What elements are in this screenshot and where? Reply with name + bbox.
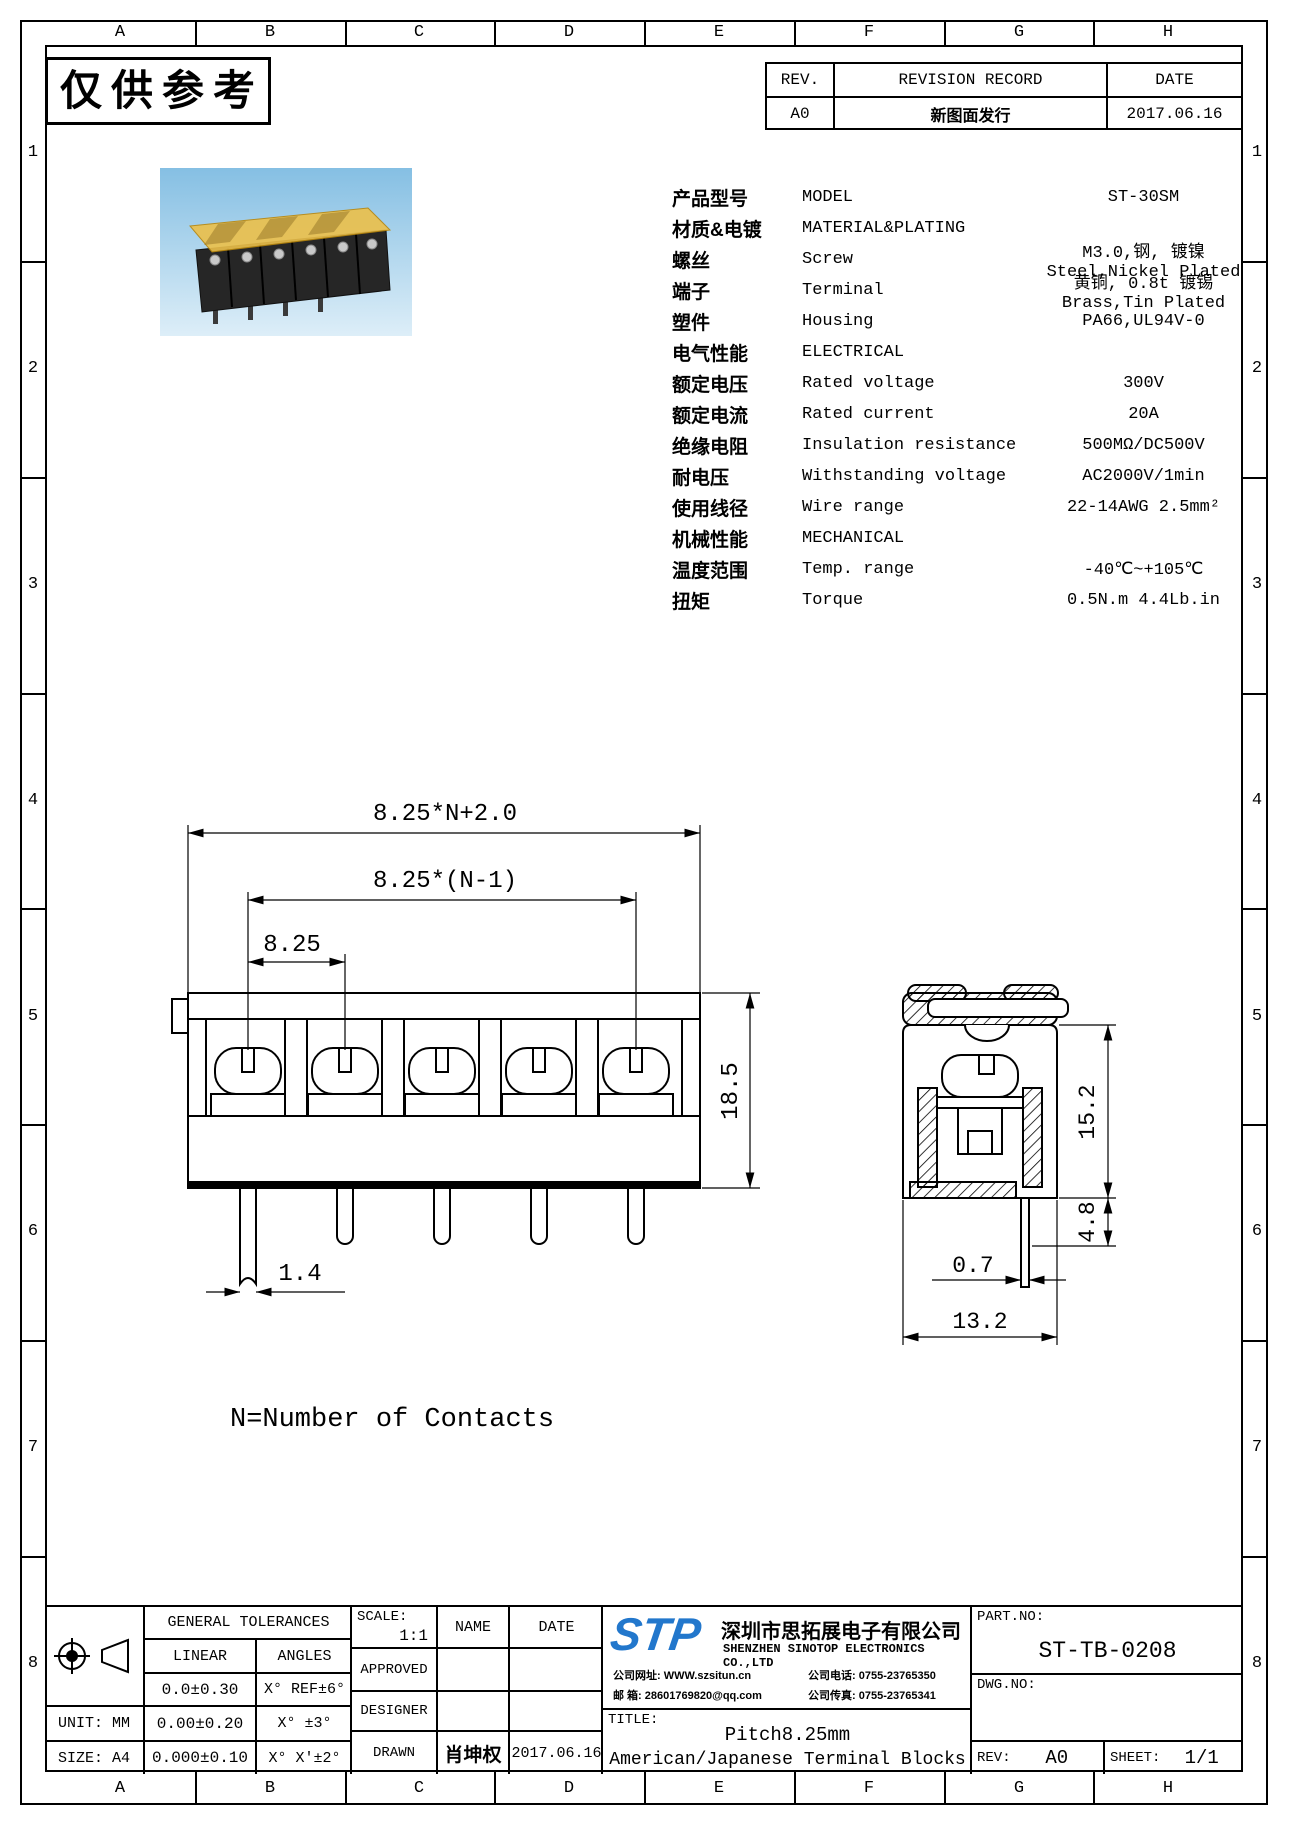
- designer-name-cell: [438, 1692, 510, 1732]
- revision-table: REV. REVISION RECORD DATE A0 新图面发行 2017.…: [765, 62, 1243, 130]
- grid-tick: [1243, 908, 1268, 910]
- scale-label: SCALE:: [357, 1609, 407, 1625]
- rev-label: REV:: [977, 1750, 1011, 1766]
- part-no-cell: PART.NO: ST-TB-0208: [972, 1607, 1243, 1675]
- grid-tick: [1243, 693, 1268, 695]
- drawn-date: 2017.06.16: [510, 1732, 603, 1774]
- tolerance-linear-3: 0.000±0.10: [145, 1742, 257, 1774]
- grid-tick: [944, 1772, 946, 1805]
- company-website: 公司网址: WWW.szsitun.cn: [613, 1667, 751, 1683]
- grid-tick: [1243, 261, 1268, 263]
- third-angle-projection-icon: [46, 1626, 142, 1686]
- grid-row-label: 5: [1245, 1007, 1269, 1026]
- side-view-drawing: 15.2 4.8 0.7 13.2: [880, 935, 1170, 1350]
- rev-value: A0: [767, 98, 835, 130]
- grid-row-label: 7: [21, 1438, 45, 1457]
- spec-label-cn: 材质&电镀: [672, 215, 802, 242]
- designer-date-cell: [510, 1692, 603, 1732]
- grid-row-label: 2: [1245, 359, 1269, 378]
- part-no-value: ST-TB-0208: [972, 1631, 1243, 1671]
- revision-record-value: 新图面发行: [835, 98, 1108, 130]
- dim-pitch: 8.25: [263, 932, 321, 959]
- tolerance-angle-1: X° REF±6°: [257, 1674, 352, 1707]
- spec-value: AC2000V/1min: [1044, 467, 1243, 486]
- spec-label-cn: 扭矩: [672, 587, 802, 614]
- approved-label: APPROVED: [352, 1649, 438, 1692]
- company-fax: 公司传真: 0755-23765341: [808, 1687, 936, 1703]
- fax-label: 公司传真:: [808, 1690, 856, 1702]
- name-header: NAME: [438, 1607, 510, 1649]
- spec-label-en: Housing: [802, 312, 1044, 331]
- grid-tick: [794, 1772, 796, 1805]
- grid-row-label: 5: [21, 1007, 45, 1026]
- spec-value: 20A: [1044, 405, 1243, 424]
- grid-col-label: G: [1007, 1779, 1031, 1798]
- grid-row-label: 7: [1245, 1438, 1269, 1457]
- grid-tick: [195, 1772, 197, 1805]
- grid-row-label: 3: [1245, 575, 1269, 594]
- grid-row-label: 4: [21, 791, 45, 810]
- dim-side-height: 15.2: [1075, 1084, 1101, 1139]
- spec-label-en: Withstanding voltage: [802, 467, 1044, 486]
- grid-row-label: 1: [21, 143, 45, 162]
- tolerance-linear-2: 0.00±0.20: [145, 1707, 257, 1742]
- grid-row-label: 8: [1245, 1654, 1269, 1673]
- projection-symbol: [45, 1607, 145, 1707]
- spec-label-en: Terminal: [802, 281, 1044, 300]
- linear-header: LINEAR: [145, 1640, 257, 1674]
- spec-label-cn: 螺丝: [672, 246, 802, 273]
- drawing-sheet: A B C D E F G H A B C D E F G H 1 2 3 4 …: [0, 0, 1298, 1837]
- revision-date-value: 2017.06.16: [1108, 98, 1241, 130]
- grid-tick: [345, 1772, 347, 1805]
- spec-label-en: Rated voltage: [802, 374, 1044, 393]
- grid-tick: [195, 20, 197, 45]
- spec-label-en: Wire range: [802, 498, 1044, 517]
- grid-tick: [20, 908, 45, 910]
- company-name-en: SHENZHEN SINOTOP ELECTRONICS CO.,LTD: [723, 1642, 972, 1670]
- grid-row-label: 6: [1245, 1222, 1269, 1241]
- grid-tick: [794, 20, 796, 45]
- spec-value: 22-14AWG 2.5mm²: [1044, 498, 1243, 517]
- spec-label-en: Insulation resistance: [802, 436, 1044, 455]
- date-header: DATE: [510, 1607, 603, 1649]
- approved-date-cell: [510, 1649, 603, 1692]
- grid-row-label: 2: [21, 359, 45, 378]
- grid-tick: [20, 1340, 45, 1342]
- grid-col-label: C: [407, 23, 431, 42]
- spec-label-en: ELECTRICAL: [802, 343, 1044, 362]
- spec-label-en: Torque: [802, 591, 1044, 610]
- grid-col-label: E: [707, 1779, 731, 1798]
- grid-tick: [494, 1772, 496, 1805]
- spec-value: 500MΩ/DC500V: [1044, 436, 1243, 455]
- dim-pin-thickness: 0.7: [952, 1253, 993, 1279]
- dim-total-width: 8.25*N+2.0: [373, 801, 517, 828]
- phone-value: 0755-23765350: [859, 1670, 936, 1682]
- grid-col-label: D: [557, 23, 581, 42]
- grid-col-label: C: [407, 1779, 431, 1798]
- part-number-section: PART.NO: ST-TB-0208 DWG.NO: REV: A0 SHEE…: [972, 1607, 1243, 1774]
- grid-tick: [1243, 477, 1268, 479]
- grid-tick: [20, 1556, 45, 1558]
- grid-col-label: D: [557, 1779, 581, 1798]
- spec-label-cn: 产品型号: [672, 184, 802, 211]
- sheet-label: SHEET:: [1110, 1750, 1160, 1766]
- revision-record-header: REVISION RECORD: [835, 64, 1108, 96]
- tolerance-angle-3: X° X'±2°: [257, 1742, 352, 1774]
- drawn-name: 肖坤权: [438, 1732, 510, 1774]
- spec-label-cn: 额定电流: [672, 401, 802, 428]
- scale-value: 1:1: [399, 1627, 428, 1645]
- tolerance-linear-1: 0.0±0.30: [145, 1674, 257, 1707]
- spec-value: PA66,UL94V-0: [1044, 312, 1243, 331]
- grid-tick: [20, 477, 45, 479]
- grid-tick: [1093, 1772, 1095, 1805]
- title-block: GENERAL TOLERANCES LINEAR ANGLES 0.0±0.3…: [45, 1605, 1243, 1772]
- grid-tick: [1243, 1340, 1268, 1342]
- grid-col-label: A: [108, 23, 132, 42]
- unit-label: UNIT: MM: [45, 1707, 145, 1742]
- approvals-section: SCALE: 1:1 NAME DATE APPROVED DESIGNER D…: [352, 1607, 603, 1774]
- grid-tick: [494, 20, 496, 45]
- spec-value: ST-30SM: [1044, 188, 1243, 207]
- dwg-no-label: DWG.NO:: [977, 1677, 1036, 1693]
- grid-tick: [944, 20, 946, 45]
- grid-tick: [345, 20, 347, 45]
- grid-tick: [20, 1124, 45, 1126]
- date-header: DATE: [1108, 64, 1241, 96]
- tolerance-angle-2: X° ±3°: [257, 1707, 352, 1742]
- grid-row-label: 3: [21, 575, 45, 594]
- grid-tick: [1243, 1556, 1268, 1558]
- spec-label-cn: 机械性能: [672, 525, 802, 552]
- grid-row-label: 4: [1245, 791, 1269, 810]
- designer-label: DESIGNER: [352, 1692, 438, 1732]
- grid-tick: [644, 1772, 646, 1805]
- dim-pin-width: 1.4: [278, 1261, 321, 1288]
- grid-row-label: 8: [21, 1654, 45, 1673]
- fax-value: 0755-23765341: [859, 1690, 936, 1702]
- grid-col-label: B: [258, 1779, 282, 1798]
- spec-label-cn: 耐电压: [672, 463, 802, 490]
- approved-name-cell: [438, 1649, 510, 1692]
- company-name-cn: 深圳市思拓展电子有限公司: [721, 1615, 961, 1644]
- spec-label-cn: 使用线径: [672, 494, 802, 521]
- company-email: 邮 箱: 28601769820@qq.com: [613, 1687, 762, 1703]
- website-value: WWW.szsitun.cn: [664, 1670, 751, 1682]
- front-view-drawing: 8.25*N+2.0 8.25*(N-1) 8.25 18.5 1.4: [150, 780, 780, 1310]
- drawn-label: DRAWN: [352, 1732, 438, 1774]
- company-section: STP 深圳市思拓展电子有限公司 SHENZHEN SINOTOP ELECTR…: [603, 1607, 972, 1774]
- drawing-title-line1: Pitch8.25mm: [603, 1723, 972, 1747]
- grid-col-label: E: [707, 23, 731, 42]
- spec-label-cn: 端子: [672, 277, 802, 304]
- email-value: 28601769820@qq.com: [645, 1690, 762, 1702]
- grid-row-label: 1: [1245, 143, 1269, 162]
- phone-label: 公司电话:: [808, 1670, 856, 1682]
- grid-tick: [20, 261, 45, 263]
- dim-pin-length: 4.8: [1075, 1201, 1101, 1242]
- grid-tick: [1093, 20, 1095, 45]
- product-photo: [160, 168, 412, 336]
- spec-label-en: Screw: [802, 250, 1044, 269]
- tolerances-section: GENERAL TOLERANCES LINEAR ANGLES 0.0±0.3…: [45, 1607, 352, 1774]
- spec-label-cn: 绝缘电阻: [672, 432, 802, 459]
- drawing-title-line2: American/Japanese Terminal Blocks: [603, 1748, 972, 1772]
- company-phone: 公司电话: 0755-23765350: [808, 1667, 936, 1683]
- spec-label-cn: 温度范围: [672, 556, 802, 583]
- sheet-value: 1/1: [1160, 1747, 1243, 1769]
- angles-header: ANGLES: [257, 1640, 352, 1674]
- scale-cell: SCALE: 1:1: [352, 1607, 438, 1649]
- website-label: 公司网址:: [613, 1670, 661, 1682]
- spec-label-cn: 塑件: [672, 308, 802, 335]
- dim-span: 8.25*(N-1): [373, 868, 517, 895]
- spec-label-en: MATERIAL&PLATING: [802, 219, 1044, 238]
- grid-tick: [20, 693, 45, 695]
- grid-col-label: F: [857, 1779, 881, 1798]
- spec-label-cn: 额定电压: [672, 370, 802, 397]
- rev-value: A0: [1011, 1747, 1103, 1769]
- spec-label-en: Temp. range: [802, 560, 1044, 579]
- drawing-title-cell: TITLE: Pitch8.25mm American/Japanese Ter…: [603, 1710, 972, 1774]
- email-label: 邮 箱:: [613, 1690, 642, 1702]
- grid-col-label: F: [857, 23, 881, 42]
- reference-only-stamp: 仅供参考: [45, 57, 271, 125]
- spec-value: 0.5N.m 4.4Lb.in: [1044, 591, 1243, 610]
- grid-col-label: G: [1007, 23, 1031, 42]
- spec-value: -40℃~+105℃: [1044, 559, 1243, 580]
- company-info: STP 深圳市思拓展电子有限公司 SHENZHEN SINOTOP ELECTR…: [603, 1607, 972, 1710]
- grid-col-label: H: [1156, 1779, 1180, 1798]
- spec-label-en: MODEL: [802, 188, 1044, 207]
- grid-col-label: A: [108, 1779, 132, 1798]
- grid-tick: [644, 20, 646, 45]
- sheet-cell: SHEET: 1/1: [1105, 1742, 1243, 1774]
- spec-value: 300V: [1044, 374, 1243, 393]
- dim-depth: 13.2: [952, 1309, 1007, 1335]
- spec-label-en: MECHANICAL: [802, 529, 1044, 548]
- grid-col-label: B: [258, 23, 282, 42]
- grid-row-label: 6: [21, 1222, 45, 1241]
- spec-label-cn: 电气性能: [672, 339, 802, 366]
- size-label: SIZE: A4: [45, 1742, 145, 1774]
- dim-height: 18.5: [718, 1062, 745, 1120]
- dwg-no-cell: DWG.NO:: [972, 1675, 1243, 1742]
- rev-cell: REV: A0: [972, 1742, 1105, 1774]
- grid-tick: [1243, 1124, 1268, 1126]
- company-logo: STP: [607, 1607, 704, 1661]
- contacts-note: N=Number of Contacts: [230, 1405, 554, 1435]
- grid-col-label: H: [1156, 23, 1180, 42]
- general-tolerances-header: GENERAL TOLERANCES: [145, 1607, 352, 1640]
- rev-header: REV.: [767, 64, 835, 96]
- part-no-label: PART.NO:: [977, 1609, 1044, 1625]
- spec-label-en: Rated current: [802, 405, 1044, 424]
